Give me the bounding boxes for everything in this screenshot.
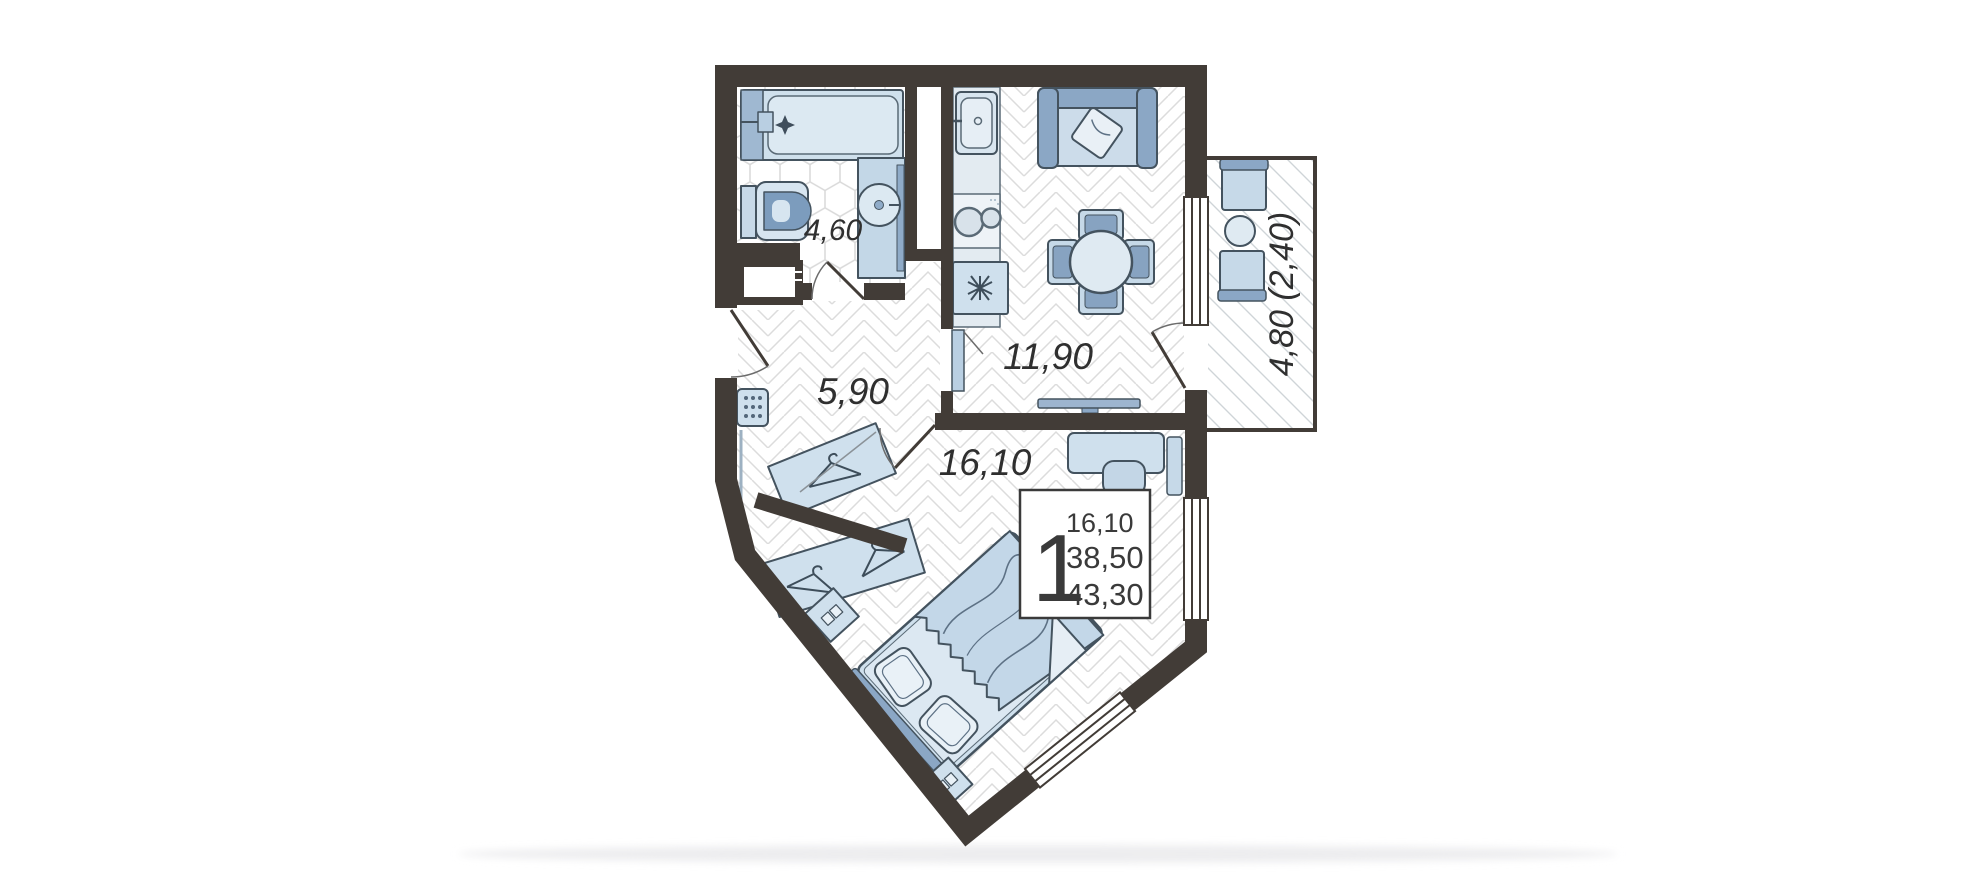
toilet xyxy=(741,182,811,240)
wall-bathroom-bottom-left xyxy=(737,243,800,260)
wall-bathroom-right xyxy=(905,87,917,261)
room-label-kitchen-living: 11,90 xyxy=(1003,336,1093,377)
room-label-hallway: 5,90 xyxy=(817,371,889,412)
bathroom-vanity-sink xyxy=(858,158,905,278)
card-shadow xyxy=(458,845,1618,863)
floorplan-svg: 4,60 5,90 11,90 16,10 4,80 (2,40) 1 16,1… xyxy=(0,0,1980,886)
floorplan-page: 4,60 5,90 11,90 16,10 4,80 (2,40) 1 16,1… xyxy=(0,0,1980,886)
info-living-area: 16,10 xyxy=(1066,508,1134,538)
hall-closet xyxy=(737,260,803,305)
radiator xyxy=(1167,437,1182,495)
info-box: 1 16,10 38,50 43,30 xyxy=(1020,490,1150,622)
balcony-table xyxy=(1225,216,1255,246)
wall-kitchen-left-upper xyxy=(941,87,953,329)
dining-table xyxy=(1070,231,1132,293)
room-label-balcony: 4,80 (2,40) xyxy=(1263,212,1301,376)
electrical-panel xyxy=(737,389,768,426)
info-total-area-with-balcony: 43,30 xyxy=(1066,577,1144,612)
room-label-bedroom: 16,10 xyxy=(939,442,1032,483)
kitchen-window xyxy=(1184,197,1208,325)
bedroom-window xyxy=(1184,498,1208,620)
info-total-area: 38,50 xyxy=(1066,540,1144,575)
bathtub xyxy=(741,90,903,160)
bath-faucet-icon xyxy=(758,112,773,132)
stove xyxy=(953,194,1001,248)
wall-bedroom-top xyxy=(935,413,1185,430)
balcony-chair-1 xyxy=(1220,159,1268,210)
wall-bathroom-bottom-right xyxy=(864,283,905,300)
shaft xyxy=(917,87,941,249)
sofa xyxy=(1038,88,1157,168)
room-label-bathroom: 4,60 xyxy=(804,214,863,247)
fridge xyxy=(953,262,1008,314)
balcony-chair-2 xyxy=(1218,251,1266,301)
